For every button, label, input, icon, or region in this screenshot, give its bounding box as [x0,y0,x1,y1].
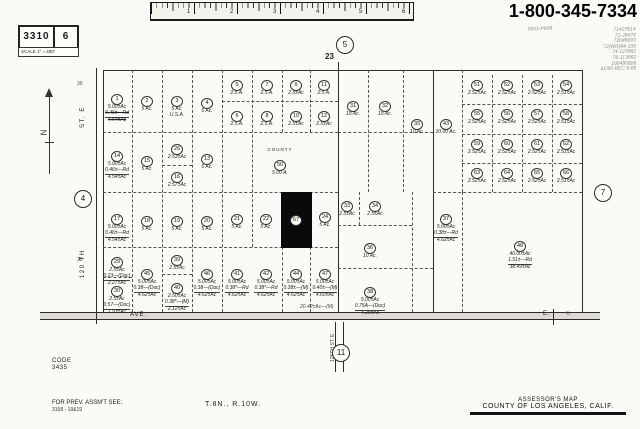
prev-assessment-value: 3158 - 19&19 [52,407,122,414]
ruler: 123456 [150,2,414,21]
adjacent-sheet-bottom: 11 [332,344,350,362]
township-range-label: T.8N., R.10W. [205,401,261,408]
ruler-number: 5 [359,9,362,15]
parcel-acreage: 2.51±Ac [536,120,596,126]
parcel: 4840.00±Ac1.51±—Rd38.49±Ac [490,235,550,270]
parcel: 342.5±Ac [345,195,405,218]
north-arrow-bar [45,142,54,143]
parcel-number: 50 [274,160,286,171]
adjacent-sheet-top: 5 [336,36,354,54]
parcel-acreage: 38.49±Ac [490,265,550,271]
parcel-acreage: 2.51±Ac [536,150,596,156]
prev-assessment-label: FOR PREV. ASSM'T SEE: [52,400,122,407]
parcel: COUNTY505.00 A. [250,148,310,176]
handwritten-recorder-column: 7142761471-J94767204809372(WR)84-10974-1… [576,27,637,73]
parcel: 3610 Ac. [340,237,400,260]
parcel-acreage: 4.54±Ac [87,175,147,181]
parcel: 135 Ac. [177,148,237,171]
assessor-map-subtitle: COUNTY OF LOS ANGELES, CALIF. [470,403,626,410]
parcel-acreage: 2.5±Ac [345,212,405,218]
parcel-acreage: 2.51±Ac [536,91,596,97]
parcel-acreage: 5.00 A. [250,171,310,177]
parcel-acreage: 10 Ac. [340,254,400,260]
map-line [433,192,582,193]
map-line [103,132,338,133]
map-line [40,319,600,320]
parcel: 375.00±Ac0.38±—Rd4.62±Ac [416,208,476,243]
parcel: 112.5 A. [294,74,354,97]
handwritten-line: 81/90 REC 6-85 [576,67,636,74]
map-line [222,101,338,102]
handwritten-note: 8811-P608 [528,26,552,33]
map-label: ¾ [566,311,570,317]
parcel: 385.00±Ac0.75A—(Doc)4.25±Ac [340,281,400,316]
parcel-acreage: 4.25±Ac [340,311,400,317]
north-label: N [39,130,48,136]
map-label: ST. E [80,106,86,128]
map-line [412,192,413,312]
parcel-acreage: 2.57±Ac [147,183,207,189]
parcel-acreage: 4.54±Ac [87,238,147,244]
sheet-number: 3310 [20,27,55,47]
page-number: 6 [55,27,77,47]
parcel-acreage: 2.51±Ac [536,179,596,185]
code-value: 3435 [52,365,71,372]
parcel-acreage: 4.54±Ac [87,118,147,124]
map-line [433,70,434,312]
adjacent-sheet-left: 4 [74,190,92,208]
parcel-acreage: 5 Ac. [295,223,355,229]
prev-assessment-block: FOR PREV. ASSM'T SEE: 3158 - 19&19 [52,400,122,414]
ruler-number: 6 [402,9,405,15]
assessor-title-block: ASSESSOR'S MAP COUNTY OF LOS ANGELES, CA… [470,397,626,415]
map-label: AVE. [130,312,147,318]
parcel-acreage: 5 Ac. [177,165,237,171]
parcel: 622.51±Ac [536,133,596,156]
map-line [103,70,582,71]
scale-label: SCALE 1" = 400' [18,47,79,57]
parcel: 582.51±Ac [536,103,596,126]
ruler-number: 4 [316,9,319,15]
parcel: 542.51±Ac [536,74,596,97]
map-label: 30 [77,81,83,87]
adjacent-sheet-right: 7 [594,184,612,202]
map-label: 23 [325,52,334,61]
map-label: 120 TH [80,249,86,278]
map-line [553,309,554,325]
map-label: 20.42±Ac—(M) [300,304,334,310]
ruler-number: 2 [230,9,233,15]
tax-code-block: CODE 3435 [52,358,71,371]
map-sheet-box: 3310 6 [18,25,79,49]
parcel-acreage: 2.5±Ac [294,122,354,128]
assessor-map-page: { "header": { "phone": "1-800-345-7334",… [0,0,640,429]
assessor-title-rule [470,412,626,415]
parcel: 662.51±Ac [536,162,596,185]
parcel-acreage: 2.12±Ac [147,307,207,313]
code-label: CODE [52,358,71,365]
ruler-number: 3 [273,9,276,15]
phone-number: 1-800-345-7334 [509,1,637,22]
map-label: E. [543,311,551,317]
ruler-number: 1 [187,9,190,15]
map-line [368,70,369,192]
north-arrow-line [49,96,50,174]
parcel-owner-label: COUNTY [250,148,310,153]
map-label: 30 [77,257,83,263]
parcel-acreage: 4.62±Ac [416,238,476,244]
